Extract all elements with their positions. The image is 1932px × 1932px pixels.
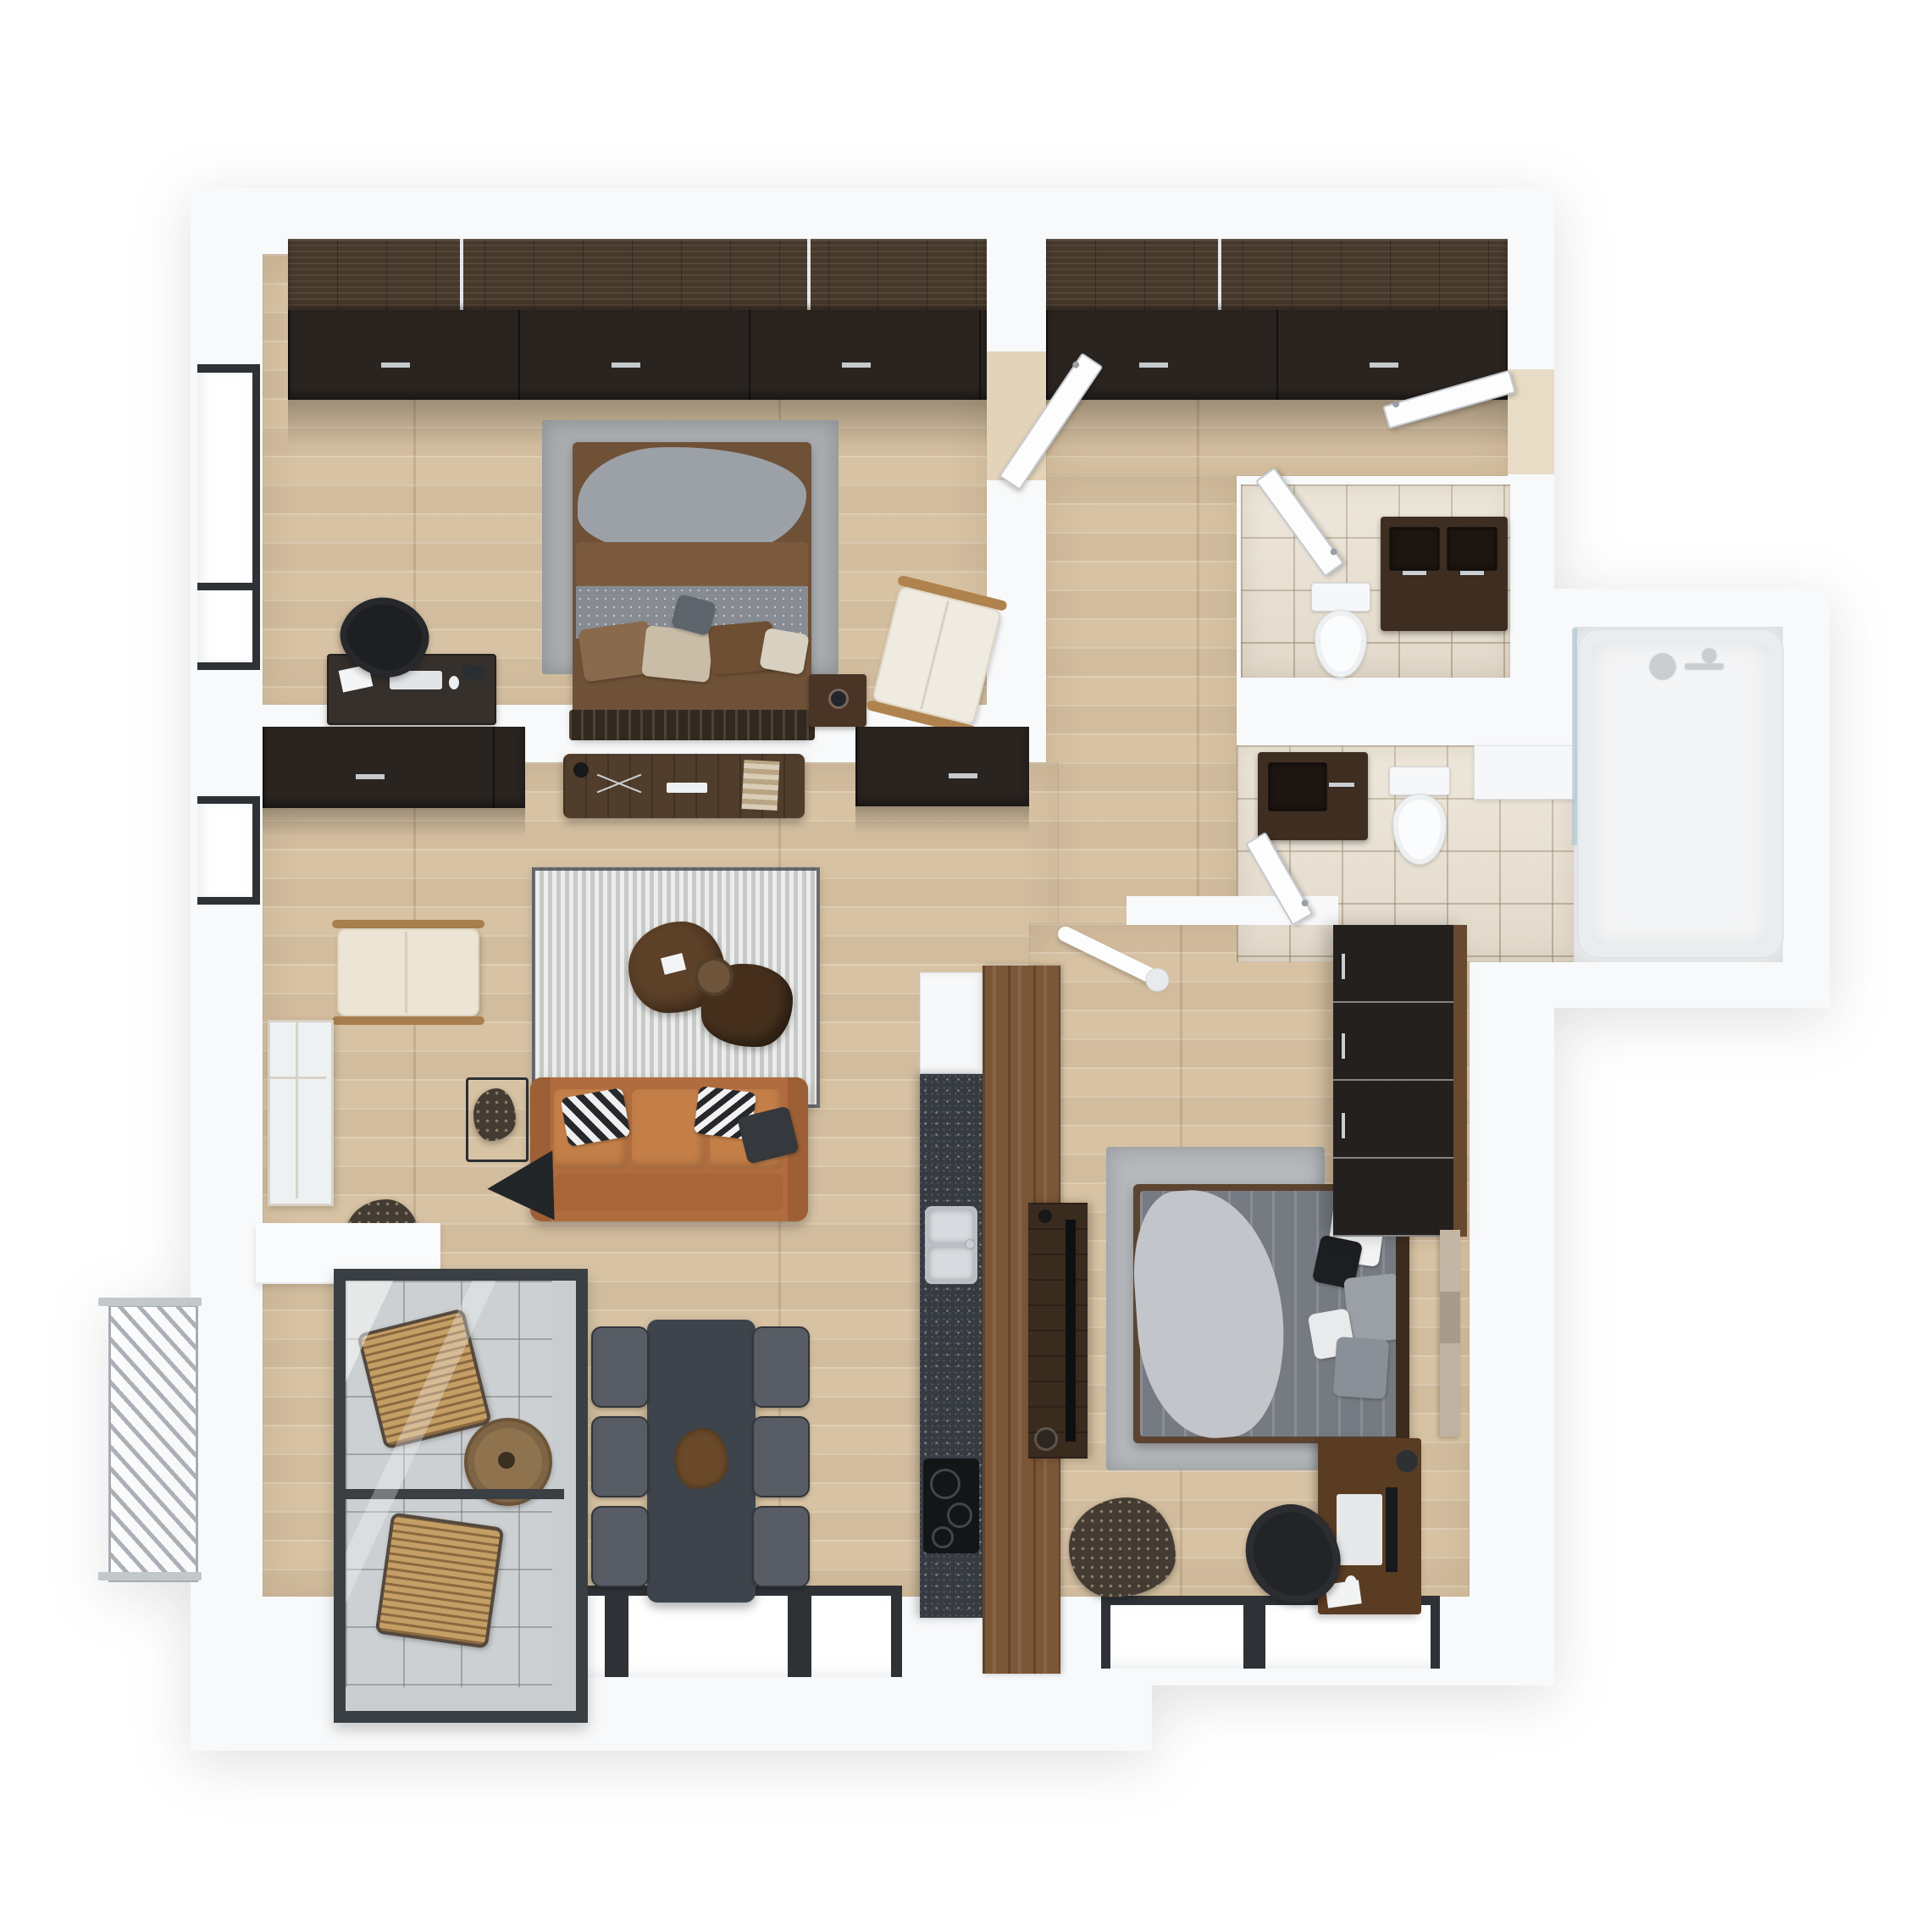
window-living-left-frame-side <box>252 796 260 905</box>
cooktop <box>923 1459 979 1553</box>
coffee-table-decor-twigs <box>695 957 733 996</box>
cabinet-kitchen-upper-shadow <box>855 806 1029 833</box>
wc-faucet-1 <box>1403 571 1426 575</box>
wc-faucet-2 <box>1460 571 1484 575</box>
bed-bedroom1 <box>573 442 811 739</box>
wardrobe-hallway-top <box>1046 239 1508 310</box>
sink-basin-2 <box>928 1247 974 1281</box>
dining-chair-l2 <box>591 1416 649 1497</box>
sofa-leather <box>530 1077 808 1221</box>
dining-chair-r3 <box>752 1506 810 1587</box>
floorplan-canvas <box>0 0 1932 1932</box>
armchair-cream <box>337 922 479 1023</box>
wardrobe2-handle-3 <box>1342 1113 1345 1138</box>
bed1-pillow-4 <box>759 628 810 675</box>
desk1-mouse <box>449 676 459 689</box>
window-living-south-mullion-2 <box>788 1586 811 1677</box>
desk2-clock <box>1396 1450 1418 1472</box>
bedroom2-tv <box>1066 1220 1076 1442</box>
wc-vanity <box>1381 517 1508 631</box>
nightstand-bedroom1 <box>809 674 866 727</box>
armchair-cream-arm-top <box>332 920 484 928</box>
dresser2-lamp <box>1037 1430 1055 1448</box>
kitchen-sink <box>925 1206 977 1284</box>
armchair-cream-arm-bottom <box>332 1016 484 1025</box>
dining-chair-r1 <box>752 1326 810 1408</box>
floor-corridor <box>1046 474 1237 967</box>
bath-washer-counter <box>1474 745 1575 800</box>
dining-chair-l1 <box>591 1326 649 1408</box>
cooktop-ring-1 <box>930 1469 960 1499</box>
artwork-leaning-bedroom2 <box>1440 1230 1460 1437</box>
wardrobe2-wood-side <box>1453 925 1467 1237</box>
window-bedroom1-frame-side <box>252 364 260 670</box>
bed1-duvet <box>578 447 806 557</box>
window-bedroom1-frame-top <box>197 364 260 373</box>
bathtub <box>1577 628 1784 959</box>
tv-console <box>563 754 805 818</box>
window-bedroom1-frame-mid <box>197 583 260 590</box>
desk1-phone <box>462 664 485 680</box>
window-living-south-mullion-1 <box>605 1586 628 1677</box>
sink-faucet <box>966 1240 974 1248</box>
wc-toilet-tank <box>1311 583 1370 612</box>
shower-head <box>1650 654 1675 679</box>
loggia-glass-box <box>334 1269 588 1723</box>
dining-table <box>647 1320 756 1603</box>
cooktop-ring-3 <box>932 1526 954 1548</box>
bathtub-glass-screen <box>1572 628 1577 845</box>
bed1-blanket-brown <box>576 542 808 588</box>
mirror-grid-v <box>296 1022 298 1199</box>
shower-knob <box>1702 649 1716 662</box>
wc-basin-2 <box>1447 527 1497 571</box>
plant-bedroom2 <box>1069 1497 1176 1597</box>
bath-faucet <box>1329 783 1354 787</box>
mirror-grid-h <box>270 1077 326 1079</box>
tv-console-remote <box>667 783 707 793</box>
bath-vanity <box>1258 752 1368 840</box>
side-table-plant <box>473 1088 516 1141</box>
wardrobe-bedroom1-front <box>288 310 987 400</box>
desk2-laptop-keys <box>1337 1494 1382 1565</box>
fridge <box>920 972 984 1074</box>
cooktop-ring-2 <box>947 1503 972 1528</box>
sink-basin-1 <box>928 1210 974 1243</box>
window-living-left <box>197 796 260 905</box>
bed1-headboard <box>569 710 815 740</box>
desk-bedroom2 <box>1318 1438 1421 1614</box>
wc-basin-1 <box>1389 527 1440 571</box>
armchair-cream-seam <box>405 932 407 1013</box>
cabinet-living-left-shadow <box>263 808 525 837</box>
tv-dresser-bedroom2 <box>1028 1203 1088 1459</box>
side-table-black <box>466 1077 529 1162</box>
balcony-railing <box>108 1304 198 1582</box>
wardrobe-hallway-front <box>1046 310 1508 400</box>
bed2-pillow-gray-2 <box>1333 1337 1390 1399</box>
window-bedroom2-edge-r <box>1431 1596 1440 1669</box>
wardrobe2-handle-1 <box>1342 954 1345 979</box>
threshold-entry-door <box>1508 369 1554 474</box>
tv-console-books <box>742 760 780 811</box>
balcony-rail-cap-top <box>98 1298 202 1306</box>
bath-toilet-tank <box>1389 767 1450 795</box>
wardrobe-bedroom2 <box>1333 925 1467 1237</box>
apartment-plan <box>0 0 1932 1932</box>
dining-centerpiece <box>674 1428 728 1489</box>
window-living-left-frame-top <box>197 796 260 804</box>
shower-mixer <box>1686 664 1723 669</box>
loggia-glass-glare <box>346 1281 552 1687</box>
wardrobe2-handle-2 <box>1342 1033 1345 1059</box>
bath-basin <box>1268 762 1327 811</box>
window-bedroom2-edge-l <box>1101 1596 1110 1669</box>
window-living-left-frame-bottom <box>197 897 260 905</box>
nightstand1-decanter <box>831 691 846 706</box>
sofa-back-band <box>554 1174 783 1211</box>
window-bedroom1-frame-low <box>197 662 260 670</box>
window-bedroom2-mullion <box>1243 1596 1265 1669</box>
dining-chair-r2 <box>752 1416 810 1497</box>
balcony-rail-cap-bottom <box>98 1572 202 1580</box>
window-bedroom1 <box>197 364 260 670</box>
desk2-laptop-screen <box>1386 1487 1398 1572</box>
cabinet-living-left <box>263 727 525 808</box>
armchair-cream-seat <box>337 928 479 1016</box>
tv-console-candle <box>573 762 589 778</box>
cabinet-kitchen-upper <box>855 727 1029 806</box>
window-living-south-edge-r <box>891 1586 902 1677</box>
mirror-leaning <box>268 1020 334 1206</box>
dresser2-candle <box>1038 1210 1052 1223</box>
wardrobe-bedroom1-top <box>288 239 987 310</box>
dining-chair-l3 <box>591 1506 649 1587</box>
